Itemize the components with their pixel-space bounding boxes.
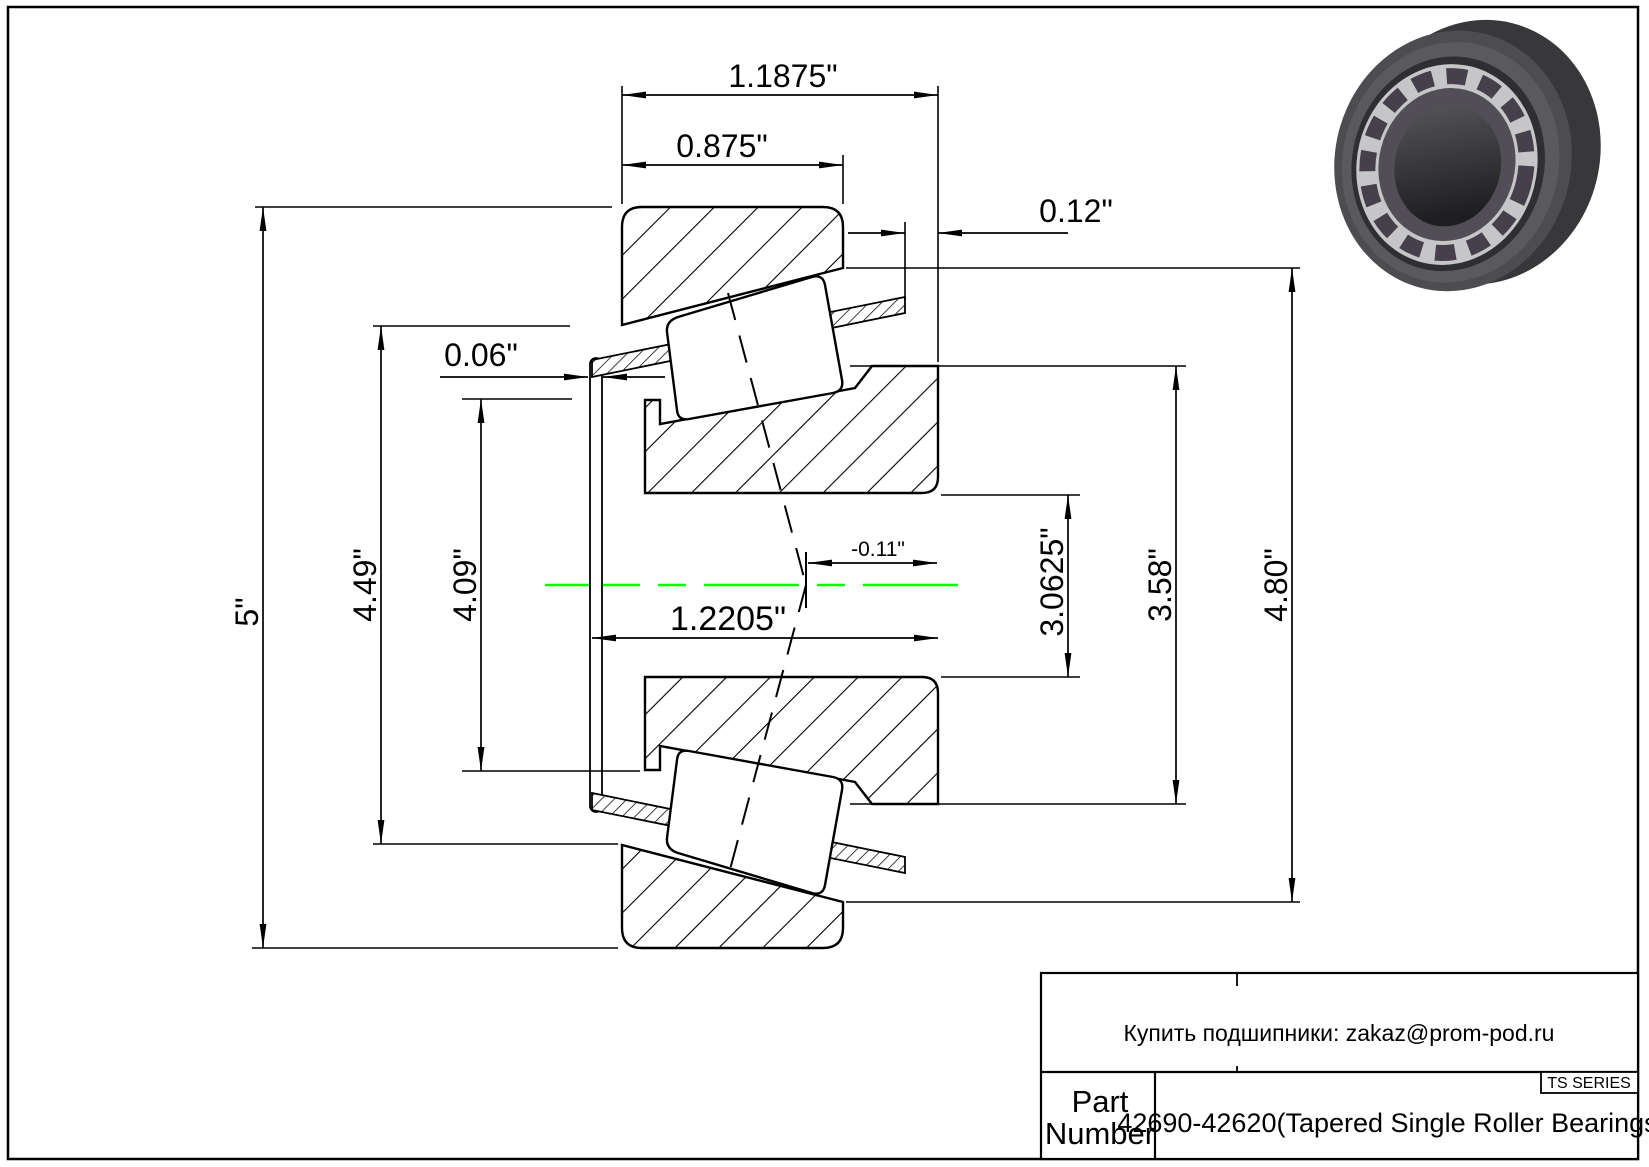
dim-label-cup-od: 4.80" — [1258, 548, 1294, 622]
dim-label-flange-od: 5" — [229, 597, 265, 626]
dim-label-effective-center: -0.11" — [851, 538, 905, 561]
dim-label-cone-back-rib-od: 3.58" — [1142, 548, 1178, 622]
dim-label-cage-front-lip: 0.06" — [444, 337, 518, 373]
dim-label-cup-front-id: 4.49" — [347, 548, 383, 622]
dim-label-cup-width: 0.875" — [676, 128, 767, 164]
drawing-sheet: 1.1875" 0.875" 0.12" 0.06" -0.11" 1.2205… — [0, 0, 1649, 1167]
dim-label-cone-width: 1.1875" — [728, 58, 837, 94]
contact-text: Купить подшипники: zakaz@prom-pod.ru — [1124, 1020, 1555, 1046]
dim-label-cone-front-width: 1.2205" — [670, 600, 786, 638]
series-badge-text: TS SERIES — [1547, 1075, 1631, 1092]
dim-label-bore-diameter: 3.0625" — [1034, 527, 1070, 636]
dim-label-back-face-offset: 0.12" — [1039, 193, 1113, 229]
part-number-text: 42690-42620(Tapered Single Roller Bearin… — [1117, 1108, 1649, 1138]
bearing-cross-section-drawing: 1.1875" 0.875" 0.12" 0.06" -0.11" 1.2205… — [0, 0, 1649, 1167]
cage-front-flange — [590, 358, 602, 812]
dim-label-cone-front-rib-od: 4.09" — [447, 548, 483, 622]
title-block: Купить подшипники: zakaz@prom-pod.ru TS … — [1041, 973, 1649, 1159]
